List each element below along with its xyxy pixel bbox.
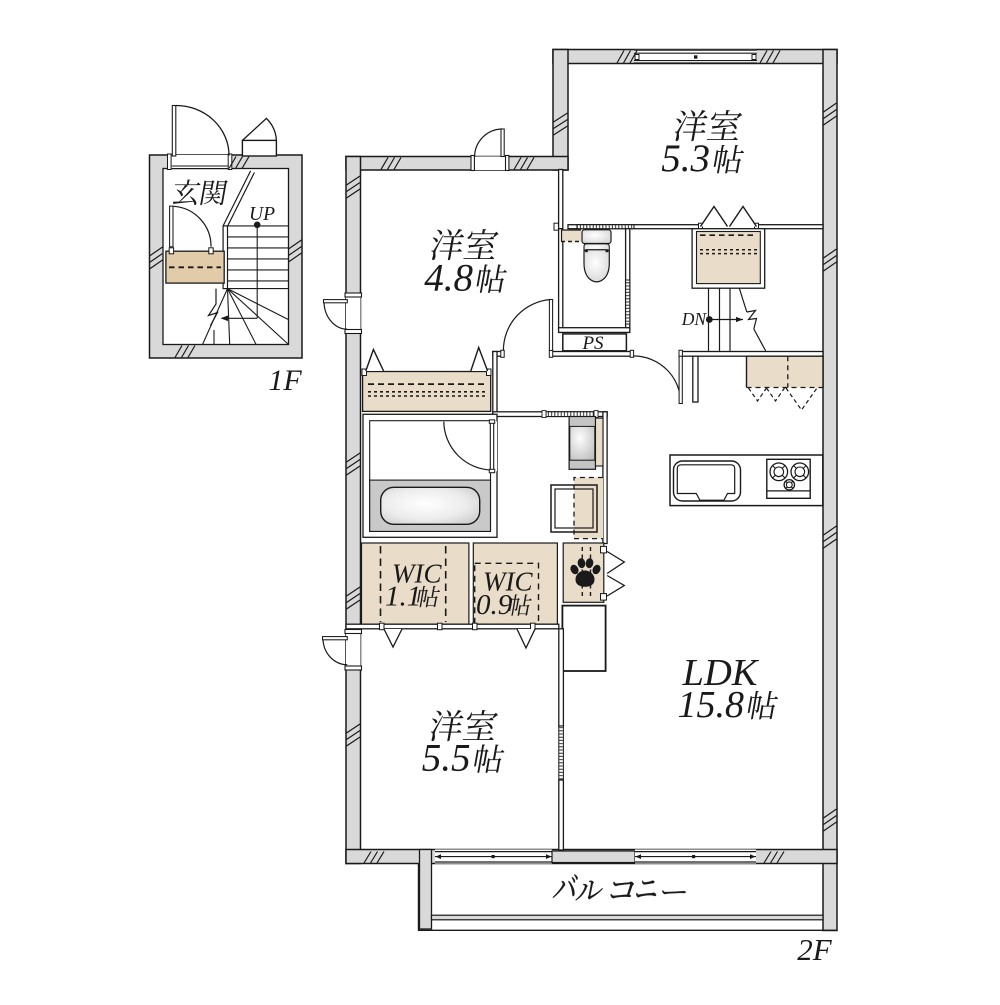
svg-text:1.1: 1.1 <box>385 581 421 613</box>
svg-text:5.3: 5.3 <box>661 137 710 180</box>
svg-text:0.9: 0.9 <box>476 589 513 621</box>
svg-text:1F: 1F <box>268 364 302 397</box>
svg-text:15.8: 15.8 <box>678 684 745 726</box>
svg-text:4.8: 4.8 <box>424 257 473 300</box>
svg-text:5.5: 5.5 <box>422 737 471 780</box>
svg-text:2F: 2F <box>797 932 833 967</box>
svg-text:UP: UP <box>249 204 275 225</box>
svg-text:PS: PS <box>581 333 604 354</box>
svg-text:DN: DN <box>681 309 708 329</box>
